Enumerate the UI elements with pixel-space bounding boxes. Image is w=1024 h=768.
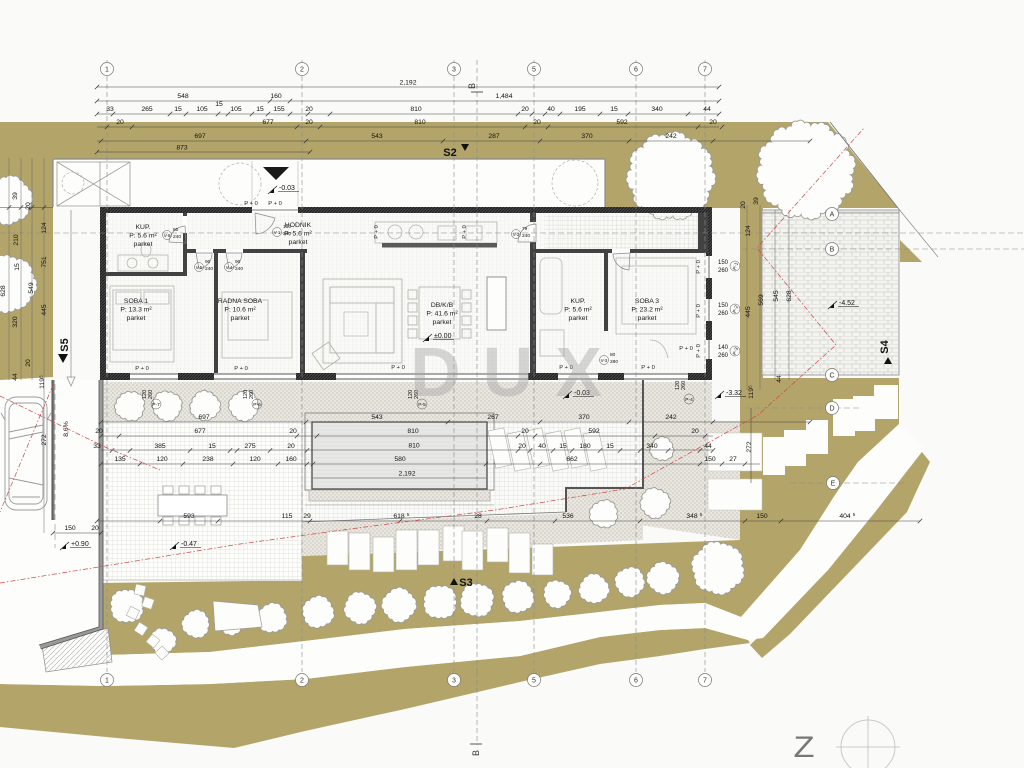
svg-text:20: 20 bbox=[521, 428, 529, 435]
svg-text:P + 0: P + 0 bbox=[696, 344, 702, 358]
svg-text:810: 810 bbox=[407, 428, 419, 435]
svg-text:287: 287 bbox=[488, 133, 500, 140]
svg-text:27: 27 bbox=[729, 456, 737, 463]
svg-text:1,484: 1,484 bbox=[495, 93, 512, 100]
svg-text:Z: Z bbox=[794, 730, 815, 763]
svg-text:20: 20 bbox=[25, 359, 32, 367]
svg-text:160: 160 bbox=[270, 93, 282, 100]
svg-text:KUP.: KUP. bbox=[136, 224, 151, 231]
svg-text:3: 3 bbox=[452, 678, 456, 685]
svg-text:677: 677 bbox=[194, 428, 206, 435]
svg-text:150: 150 bbox=[718, 260, 729, 266]
svg-text:5: 5 bbox=[532, 678, 536, 685]
svg-text:150: 150 bbox=[64, 525, 76, 532]
svg-text:P + 0: P + 0 bbox=[696, 304, 702, 318]
svg-text:-3.32: -3.32 bbox=[726, 390, 742, 397]
svg-text:44: 44 bbox=[704, 443, 712, 450]
svg-text:135: 135 bbox=[114, 456, 126, 463]
svg-text:272: 272 bbox=[746, 441, 753, 453]
svg-text:20: 20 bbox=[709, 119, 717, 126]
svg-text:80: 80 bbox=[173, 227, 179, 233]
svg-text:5: 5 bbox=[532, 67, 536, 74]
svg-text:340: 340 bbox=[651, 106, 663, 113]
svg-text:20: 20 bbox=[25, 202, 32, 210]
svg-text:C: C bbox=[829, 373, 834, 380]
svg-text:44: 44 bbox=[12, 373, 19, 381]
svg-text:240: 240 bbox=[235, 266, 243, 272]
svg-text:79: 79 bbox=[522, 226, 528, 232]
svg-text:545: 545 bbox=[773, 290, 780, 302]
svg-text:150: 150 bbox=[704, 456, 716, 463]
svg-text:33: 33 bbox=[106, 106, 114, 113]
svg-text:P-6: P-6 bbox=[253, 402, 261, 408]
svg-text:P-7: P-7 bbox=[152, 402, 160, 408]
svg-text:parket: parket bbox=[433, 319, 452, 326]
svg-text:150: 150 bbox=[756, 513, 768, 520]
svg-text:119⁵: 119⁵ bbox=[748, 385, 755, 399]
svg-text:-0.47: -0.47 bbox=[181, 541, 197, 548]
svg-text:B: B bbox=[471, 750, 481, 756]
svg-text:242: 242 bbox=[665, 414, 677, 421]
svg-text:105: 105 bbox=[196, 106, 208, 113]
svg-text:V-4: V-4 bbox=[226, 265, 233, 270]
svg-text:549: 549 bbox=[28, 282, 35, 294]
svg-text:15: 15 bbox=[208, 443, 216, 450]
svg-text:536: 536 bbox=[562, 513, 574, 520]
svg-text:S4: S4 bbox=[879, 339, 891, 353]
svg-text:P: 5.6 m²: P: 5.6 m² bbox=[129, 233, 157, 240]
svg-text:20: 20 bbox=[533, 119, 541, 126]
svg-text:15: 15 bbox=[559, 443, 567, 450]
svg-text:240: 240 bbox=[283, 231, 291, 237]
svg-text:15: 15 bbox=[215, 101, 223, 108]
svg-text:28: 28 bbox=[474, 513, 482, 520]
svg-text:+0.90: +0.90 bbox=[71, 541, 89, 548]
svg-text:7: 7 bbox=[703, 67, 707, 74]
svg-text:2,192: 2,192 bbox=[398, 471, 415, 478]
svg-text:618: 618 bbox=[393, 513, 405, 520]
svg-text:140: 140 bbox=[718, 345, 729, 351]
svg-text:RADNA SOBA: RADNA SOBA bbox=[218, 298, 263, 305]
svg-text:parket: parket bbox=[569, 315, 588, 322]
svg-text:628: 628 bbox=[0, 285, 7, 297]
svg-text:P + 0: P + 0 bbox=[391, 365, 405, 371]
svg-text:810: 810 bbox=[410, 106, 422, 113]
svg-text:20: 20 bbox=[521, 106, 529, 113]
svg-text:370: 370 bbox=[581, 133, 593, 140]
svg-text:320: 320 bbox=[12, 316, 19, 328]
svg-text:V-1: V-1 bbox=[274, 230, 281, 235]
svg-text:P + 0: P + 0 bbox=[135, 366, 149, 372]
svg-text:677: 677 bbox=[262, 119, 274, 126]
svg-text:445: 445 bbox=[745, 306, 752, 318]
svg-text:260: 260 bbox=[249, 390, 255, 399]
svg-text:404: 404 bbox=[839, 513, 851, 520]
svg-text:265: 265 bbox=[141, 106, 153, 113]
svg-text:KUP.: KUP. bbox=[571, 298, 586, 305]
svg-text:628: 628 bbox=[786, 290, 793, 302]
svg-text:592: 592 bbox=[588, 428, 600, 435]
svg-text:240: 240 bbox=[522, 233, 530, 239]
svg-text:33: 33 bbox=[93, 443, 101, 450]
svg-text:parket: parket bbox=[127, 315, 146, 322]
svg-text:S3: S3 bbox=[459, 577, 472, 589]
svg-text:15: 15 bbox=[606, 443, 614, 450]
svg-text:44: 44 bbox=[776, 375, 783, 383]
svg-text:-4.52: -4.52 bbox=[839, 300, 855, 307]
svg-text:20: 20 bbox=[305, 119, 313, 126]
svg-text:29: 29 bbox=[303, 513, 311, 520]
svg-text:3: 3 bbox=[452, 67, 456, 74]
svg-text:44: 44 bbox=[703, 106, 711, 113]
svg-text:parket: parket bbox=[638, 315, 657, 322]
svg-text:P + 0: P + 0 bbox=[268, 201, 282, 207]
svg-text:593: 593 bbox=[183, 513, 195, 520]
svg-text:348: 348 bbox=[686, 513, 698, 520]
svg-text:105: 105 bbox=[230, 106, 242, 113]
svg-text:445: 445 bbox=[41, 304, 48, 316]
svg-text:P: 5.6 m²: P: 5.6 m² bbox=[564, 307, 592, 314]
svg-text:D: D bbox=[829, 406, 834, 413]
svg-text:124: 124 bbox=[745, 225, 752, 237]
svg-text:385: 385 bbox=[154, 443, 166, 450]
svg-text:SOBA 3: SOBA 3 bbox=[635, 298, 659, 305]
svg-text:119⁵: 119⁵ bbox=[39, 375, 46, 389]
svg-text:697: 697 bbox=[198, 414, 210, 421]
svg-text:-0.03: -0.03 bbox=[279, 185, 295, 192]
svg-text:155: 155 bbox=[273, 106, 285, 113]
svg-text:2,192: 2,192 bbox=[399, 80, 416, 87]
svg-text:370: 370 bbox=[578, 414, 590, 421]
svg-text:15: 15 bbox=[174, 106, 182, 113]
svg-text:90: 90 bbox=[205, 259, 211, 265]
svg-text:543: 543 bbox=[371, 133, 383, 140]
svg-text:20: 20 bbox=[691, 428, 699, 435]
svg-text:8,6%: 8,6% bbox=[63, 421, 70, 437]
svg-text:parket: parket bbox=[134, 241, 153, 248]
svg-text:150: 150 bbox=[718, 303, 729, 309]
svg-text:20: 20 bbox=[289, 428, 297, 435]
svg-text:P: 10.6 m²: P: 10.6 m² bbox=[224, 307, 256, 314]
svg-text:275: 275 bbox=[244, 443, 256, 450]
svg-text:P: 41.6 m²: P: 41.6 m² bbox=[426, 311, 458, 318]
svg-text:210: 210 bbox=[13, 234, 20, 246]
svg-text:20: 20 bbox=[740, 201, 747, 209]
svg-text:240: 240 bbox=[205, 266, 213, 272]
svg-text:115: 115 bbox=[282, 513, 293, 520]
svg-text:1: 1 bbox=[105, 67, 109, 74]
svg-text:S2: S2 bbox=[443, 147, 456, 159]
svg-text:20: 20 bbox=[305, 106, 313, 113]
svg-text:580: 580 bbox=[394, 456, 406, 463]
svg-text:39: 39 bbox=[12, 192, 19, 200]
svg-text:90: 90 bbox=[235, 259, 241, 265]
svg-text:260: 260 bbox=[148, 390, 154, 399]
svg-text:40: 40 bbox=[547, 106, 555, 113]
svg-text:E: E bbox=[831, 481, 836, 488]
svg-text:242: 242 bbox=[665, 133, 677, 140]
svg-text:20: 20 bbox=[287, 443, 295, 450]
svg-text:6: 6 bbox=[634, 678, 638, 685]
svg-text:340: 340 bbox=[646, 443, 658, 450]
svg-text:parket: parket bbox=[231, 315, 250, 322]
svg-text:SOBA 1: SOBA 1 bbox=[124, 298, 148, 305]
svg-text:124: 124 bbox=[41, 222, 48, 234]
svg-text:P + 0: P + 0 bbox=[679, 346, 693, 352]
svg-text:662: 662 bbox=[566, 456, 578, 463]
svg-text:810: 810 bbox=[414, 119, 426, 126]
svg-text:180: 180 bbox=[579, 443, 591, 450]
svg-text:B: B bbox=[467, 83, 477, 89]
svg-text:39: 39 bbox=[753, 197, 760, 205]
svg-text:810: 810 bbox=[408, 443, 420, 450]
svg-text:V-5: V-5 bbox=[196, 265, 203, 270]
svg-text:V-2: V-2 bbox=[513, 232, 520, 237]
svg-text:DB/K/B: DB/K/B bbox=[431, 302, 454, 309]
svg-text:592: 592 bbox=[616, 119, 628, 126]
svg-text:40: 40 bbox=[538, 443, 546, 450]
svg-text:543: 543 bbox=[371, 414, 383, 421]
svg-text:parket: parket bbox=[289, 239, 308, 246]
svg-text:DUX: DUX bbox=[410, 333, 624, 411]
svg-text:195: 195 bbox=[574, 106, 586, 113]
svg-text:6: 6 bbox=[634, 67, 638, 74]
svg-text:V-6: V-6 bbox=[164, 233, 171, 238]
svg-text:160: 160 bbox=[283, 224, 291, 230]
svg-text:120: 120 bbox=[249, 456, 261, 463]
svg-text:548: 548 bbox=[177, 93, 189, 100]
svg-text:P + 0: P + 0 bbox=[234, 366, 248, 372]
svg-text:P + 0: P + 0 bbox=[696, 260, 702, 274]
svg-text:120: 120 bbox=[156, 456, 168, 463]
svg-text:267: 267 bbox=[487, 414, 499, 421]
svg-text:260: 260 bbox=[718, 268, 729, 274]
svg-text:569: 569 bbox=[758, 294, 765, 306]
svg-text:751: 751 bbox=[41, 256, 48, 268]
svg-text:P + 0: P + 0 bbox=[374, 225, 380, 239]
svg-text:7: 7 bbox=[703, 678, 707, 685]
svg-text:240: 240 bbox=[173, 234, 181, 240]
svg-text:15: 15 bbox=[14, 263, 21, 271]
svg-text:P: 13.3 m²: P: 13.3 m² bbox=[120, 307, 152, 314]
svg-text:272: 272 bbox=[41, 434, 48, 446]
svg-text:260: 260 bbox=[718, 353, 729, 359]
svg-text:260: 260 bbox=[718, 311, 729, 317]
svg-text:2: 2 bbox=[300, 678, 304, 685]
svg-text:A: A bbox=[830, 212, 835, 219]
svg-text:260: 260 bbox=[681, 381, 687, 390]
svg-text:2: 2 bbox=[300, 67, 304, 74]
svg-text:20: 20 bbox=[91, 525, 99, 532]
svg-text:P-4: P-4 bbox=[685, 397, 693, 403]
svg-text:P + 0: P + 0 bbox=[462, 225, 468, 239]
svg-text:B: B bbox=[830, 247, 835, 254]
svg-text:S5: S5 bbox=[59, 338, 71, 351]
svg-text:15: 15 bbox=[256, 106, 264, 113]
svg-text:238: 238 bbox=[202, 456, 214, 463]
svg-text:20: 20 bbox=[95, 428, 103, 435]
svg-text:P + 0: P + 0 bbox=[641, 365, 655, 371]
svg-text:P + 0: P + 0 bbox=[244, 201, 258, 207]
svg-text:160: 160 bbox=[285, 456, 297, 463]
svg-text:873: 873 bbox=[176, 145, 188, 152]
svg-text:1: 1 bbox=[105, 678, 109, 685]
svg-text:15: 15 bbox=[610, 106, 618, 113]
svg-text:697: 697 bbox=[194, 133, 206, 140]
svg-text:20: 20 bbox=[116, 119, 124, 126]
